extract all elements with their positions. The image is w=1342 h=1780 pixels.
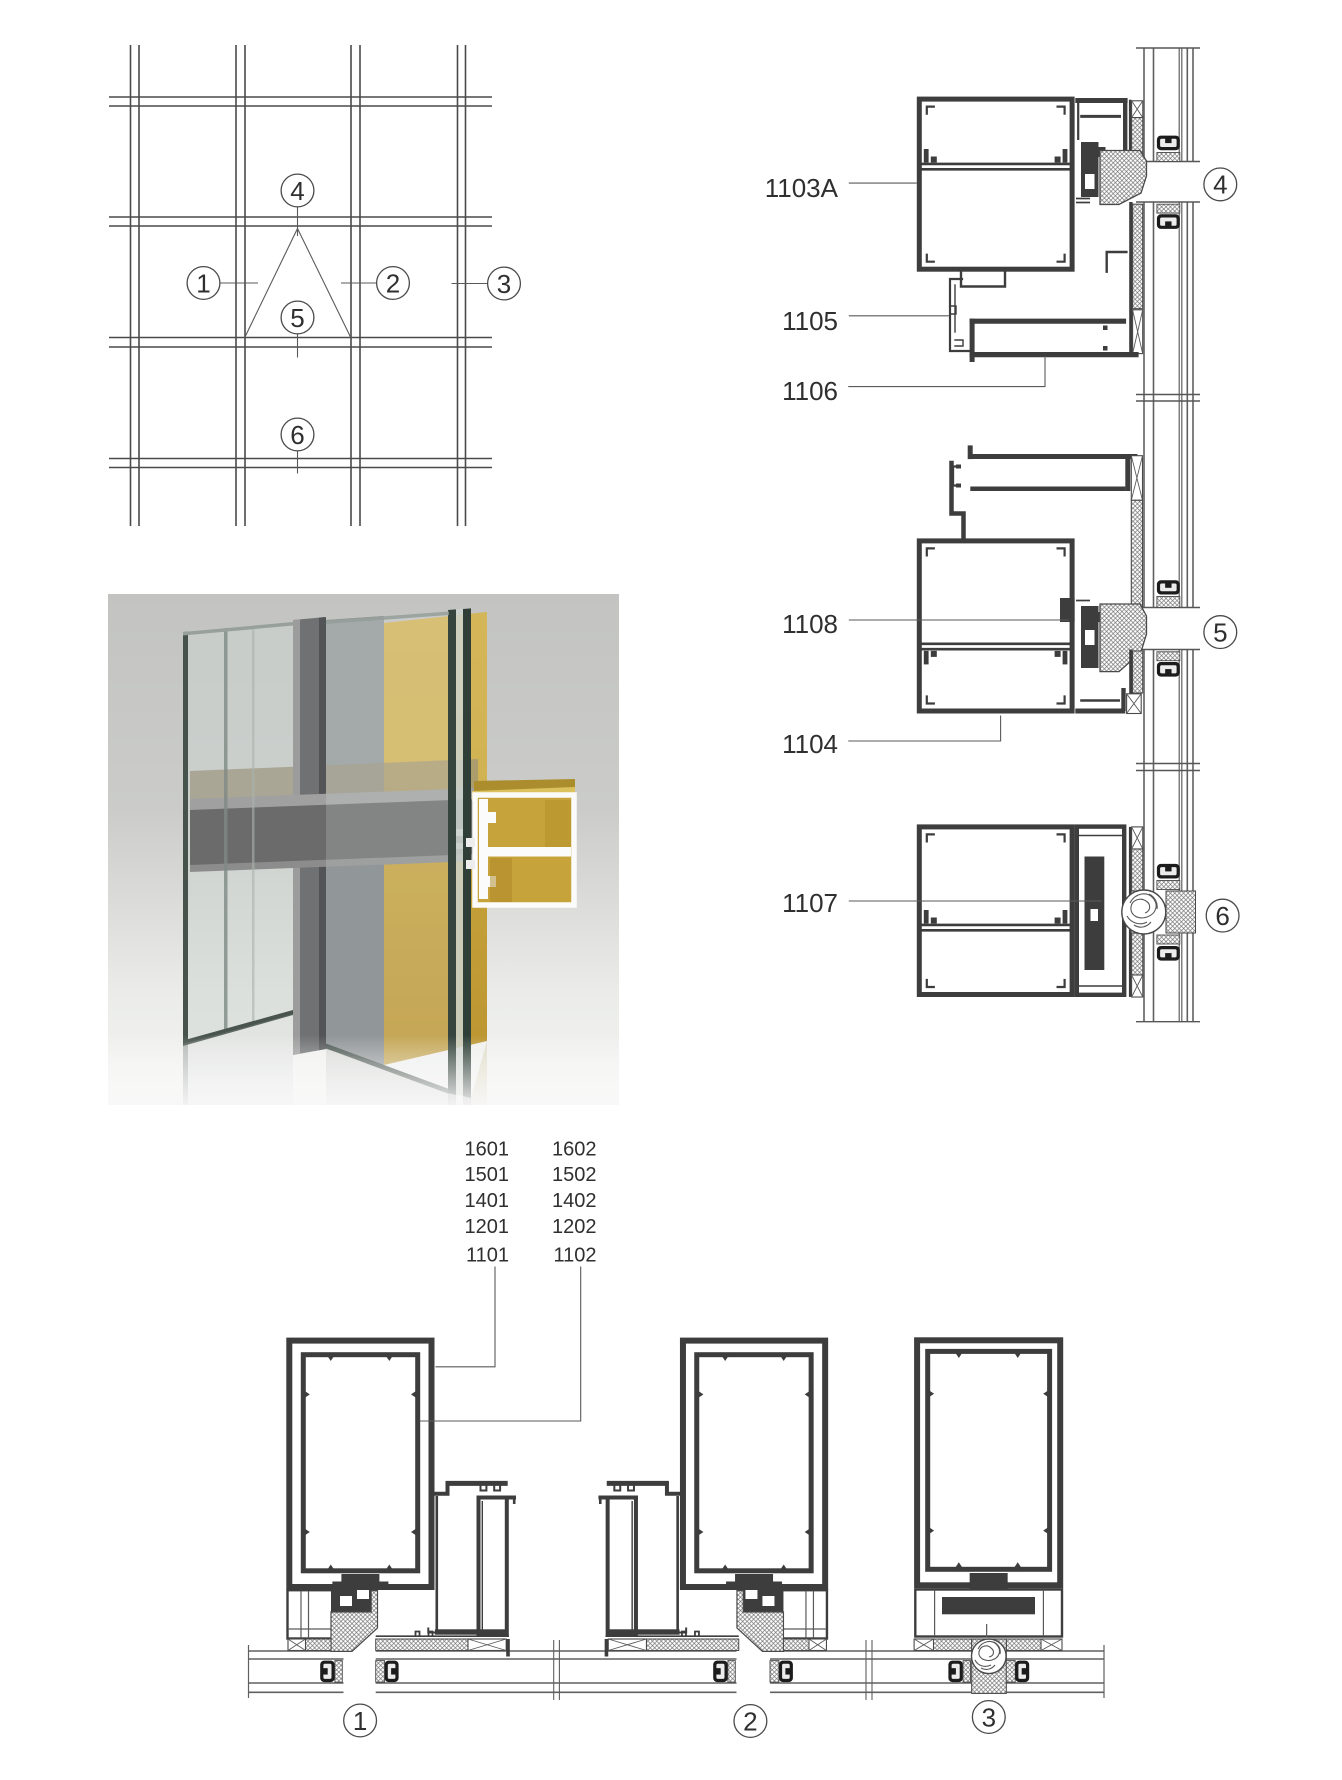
svg-text:1105: 1105 [782, 306, 838, 336]
svg-text:4: 4 [1213, 170, 1227, 200]
svg-text:1401: 1401 [465, 1190, 510, 1212]
svg-text:1108: 1108 [782, 609, 838, 639]
svg-text:2: 2 [386, 268, 400, 298]
svg-text:1107: 1107 [782, 888, 838, 918]
svg-text:1102: 1102 [553, 1244, 596, 1266]
svg-text:6: 6 [1215, 901, 1229, 931]
svg-text:3: 3 [982, 1702, 996, 1732]
svg-text:1602: 1602 [552, 1139, 597, 1161]
svg-text:4: 4 [290, 176, 304, 206]
svg-text:1601: 1601 [465, 1139, 510, 1161]
svg-text:5: 5 [290, 303, 304, 333]
svg-text:1402: 1402 [552, 1190, 597, 1212]
svg-text:1106: 1106 [782, 376, 838, 406]
svg-text:1103A: 1103A [765, 173, 839, 203]
svg-text:1101: 1101 [466, 1244, 509, 1266]
svg-text:1104: 1104 [782, 729, 838, 759]
svg-text:2: 2 [743, 1706, 757, 1736]
svg-text:1: 1 [196, 268, 210, 298]
svg-text:5: 5 [1213, 617, 1227, 647]
svg-text:1502: 1502 [552, 1164, 597, 1186]
svg-text:1202: 1202 [552, 1216, 597, 1238]
svg-text:1: 1 [353, 1706, 367, 1736]
svg-text:1201: 1201 [465, 1216, 510, 1238]
svg-text:3: 3 [497, 269, 511, 299]
svg-text:6: 6 [290, 420, 304, 450]
svg-text:1501: 1501 [465, 1164, 510, 1186]
